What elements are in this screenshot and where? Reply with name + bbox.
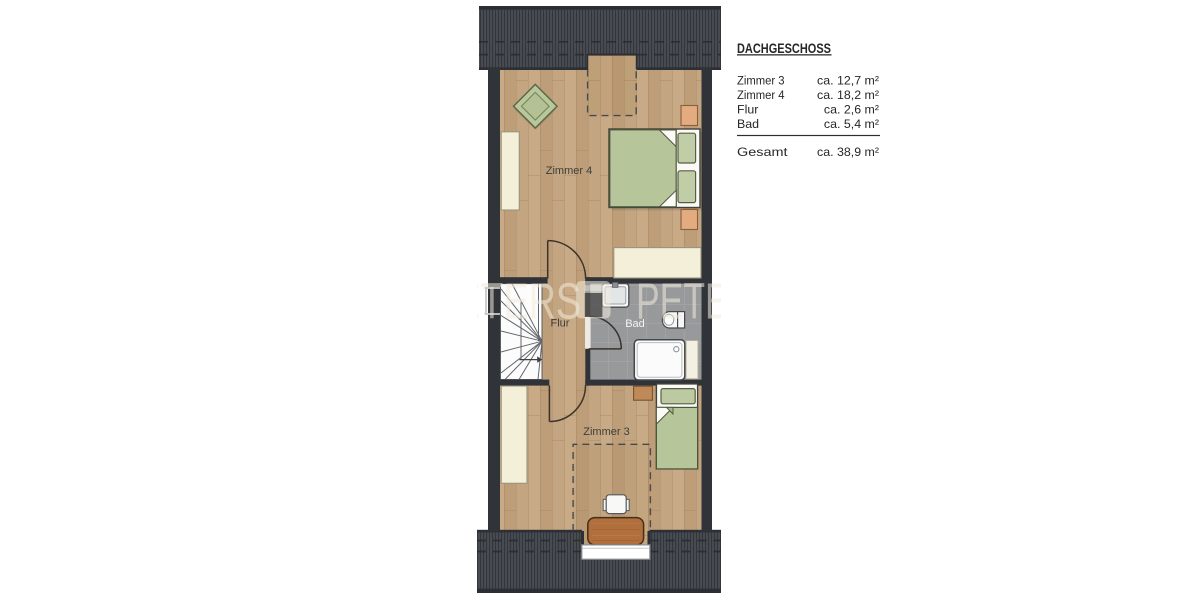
svg-text:Zimmer 3: Zimmer 3 xyxy=(737,74,785,88)
svg-text:ca. 5,4 m²: ca. 5,4 m² xyxy=(824,117,879,131)
svg-text:Gesamt: Gesamt xyxy=(737,145,788,159)
svg-text:ca. 18,2 m²: ca. 18,2 m² xyxy=(817,88,879,102)
svg-text:ca. 2,6 m²: ca. 2,6 m² xyxy=(824,103,879,117)
svg-text:Zimmer 4: Zimmer 4 xyxy=(546,165,592,177)
svg-text:ca. 38,9 m²: ca. 38,9 m² xyxy=(817,145,879,159)
svg-text:ca. 12,7 m²: ca. 12,7 m² xyxy=(817,74,879,88)
svg-text:Flur: Flur xyxy=(737,103,758,117)
svg-text:Zimmer 4: Zimmer 4 xyxy=(737,88,785,102)
svg-text:Zimmer 3: Zimmer 3 xyxy=(583,426,629,438)
svg-text:DACHGESCHOSS: DACHGESCHOSS xyxy=(737,40,831,56)
svg-text:Bad: Bad xyxy=(737,117,759,131)
